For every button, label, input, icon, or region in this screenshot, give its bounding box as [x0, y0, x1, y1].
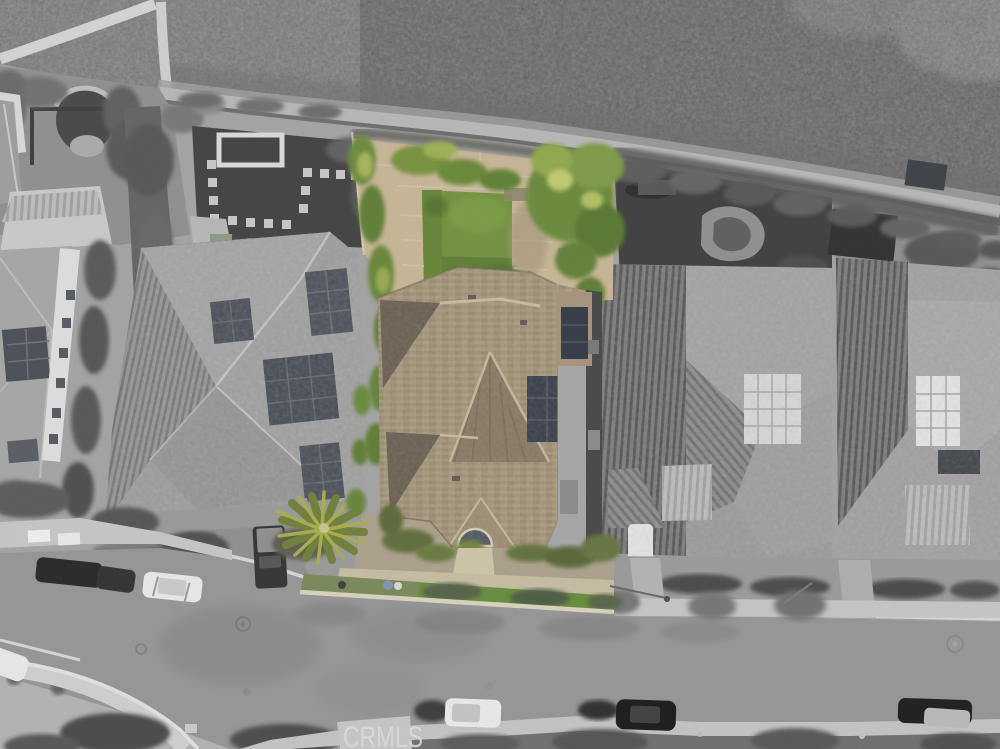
svg-text:CRMLS: CRMLS: [343, 721, 423, 749]
